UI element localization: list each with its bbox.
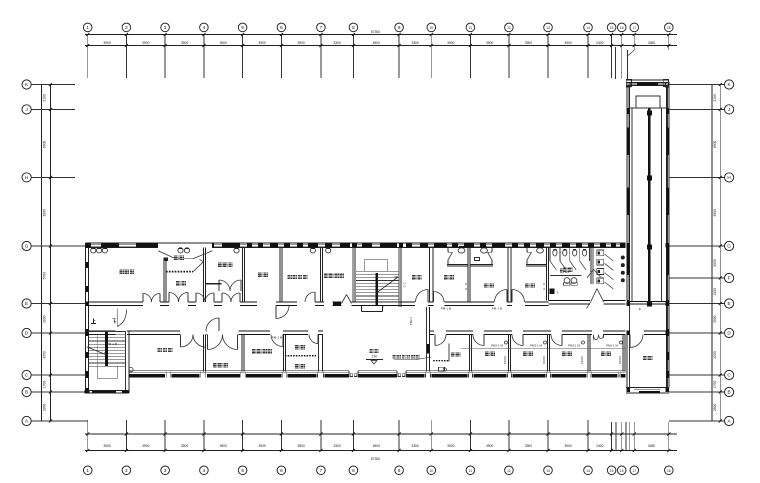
- svg-text:2: 2: [125, 25, 128, 30]
- svg-text:D: D: [25, 331, 29, 336]
- svg-text:3900: 3900: [220, 444, 228, 448]
- svg-text:5: 5: [241, 25, 244, 30]
- svg-text:15: 15: [610, 469, 614, 473]
- svg-text:2100: 2100: [713, 94, 717, 102]
- svg-text:F: F: [728, 276, 731, 281]
- svg-text:3: 3: [465, 287, 467, 291]
- svg-text:9: 9: [398, 468, 401, 473]
- svg-text:PM-1 M: PM-1 M: [272, 335, 283, 339]
- svg-text:3900: 3900: [103, 41, 111, 45]
- svg-text:10: 10: [430, 26, 434, 30]
- svg-text:1700: 1700: [43, 381, 47, 389]
- svg-text:11: 11: [469, 26, 473, 30]
- svg-text:11: 11: [469, 469, 473, 473]
- svg-text:3300: 3300: [412, 444, 420, 448]
- svg-text:3900: 3900: [258, 41, 266, 45]
- svg-text:1700: 1700: [713, 381, 717, 389]
- svg-text:3900: 3900: [486, 41, 494, 45]
- svg-text:C1015: C1015: [580, 355, 584, 364]
- svg-text:2: 2: [125, 468, 128, 473]
- svg-text:C-1: C-1: [403, 282, 407, 287]
- svg-text:17: 17: [633, 469, 637, 473]
- svg-text:13: 13: [546, 26, 550, 30]
- svg-text:1: 1: [86, 468, 89, 473]
- svg-text:2: 2: [382, 305, 384, 309]
- svg-text:7: 7: [320, 25, 323, 30]
- svg-text:PM-1 M: PM-1 M: [107, 342, 118, 346]
- svg-text:J: J: [728, 107, 730, 112]
- svg-text:PM2-1 M: PM2-1 M: [606, 344, 618, 348]
- svg-text:13: 13: [546, 469, 550, 473]
- svg-text:3900: 3900: [258, 444, 266, 448]
- svg-text:57300: 57300: [371, 457, 380, 461]
- svg-text:3900: 3900: [297, 444, 305, 448]
- svg-text:12: 12: [507, 469, 511, 473]
- svg-text:12: 12: [507, 26, 511, 30]
- svg-text:3: 3: [164, 468, 167, 473]
- svg-text:F: F: [639, 308, 642, 312]
- svg-text:3300: 3300: [333, 41, 341, 45]
- svg-text:3900: 3900: [142, 41, 150, 45]
- svg-text:2900: 2900: [43, 315, 47, 323]
- svg-text:3: 3: [543, 287, 545, 291]
- svg-text:2900: 2900: [713, 315, 717, 323]
- svg-text:8: 8: [352, 25, 355, 30]
- svg-text:A: A: [25, 419, 29, 424]
- svg-text:3450: 3450: [648, 444, 656, 448]
- svg-text:3900: 3900: [564, 444, 572, 448]
- svg-text:4500: 4500: [373, 41, 381, 45]
- svg-text:2400: 2400: [596, 41, 604, 45]
- svg-text:B: B: [25, 390, 28, 395]
- svg-text:3900: 3900: [525, 41, 533, 45]
- svg-text:1: 1: [86, 25, 89, 30]
- svg-text:3900: 3900: [297, 41, 305, 45]
- svg-text:D: D: [727, 331, 731, 336]
- svg-text:3900: 3900: [220, 41, 228, 45]
- svg-text:5700: 5700: [43, 272, 47, 280]
- svg-text:1:M: 1:M: [371, 355, 377, 359]
- svg-text:3: 3: [164, 25, 167, 30]
- svg-text:18: 18: [667, 469, 671, 473]
- svg-text:2400: 2400: [713, 288, 717, 296]
- svg-text:PM-1 M: PM-1 M: [441, 306, 452, 310]
- svg-text:G: G: [727, 244, 731, 249]
- svg-text:3300: 3300: [333, 444, 341, 448]
- svg-text:✕: ✕: [465, 282, 468, 286]
- svg-text:K: K: [728, 82, 732, 87]
- svg-text:C1015: C1015: [618, 355, 622, 364]
- svg-text:4200: 4200: [713, 351, 717, 359]
- svg-text:14: 14: [586, 26, 590, 30]
- svg-text:10: 10: [430, 469, 434, 473]
- svg-text:PM-1 M: PM-1 M: [492, 306, 503, 310]
- svg-text:K: K: [25, 82, 29, 87]
- svg-text:PM2-1 M: PM2-1 M: [568, 344, 580, 348]
- svg-text:3: 3: [557, 291, 559, 295]
- svg-text:18: 18: [667, 26, 671, 30]
- svg-text:H: H: [25, 175, 28, 180]
- svg-text:9: 9: [398, 25, 401, 30]
- svg-text:A: A: [728, 419, 732, 424]
- svg-text:3900: 3900: [486, 444, 494, 448]
- svg-text:6: 6: [280, 25, 283, 30]
- svg-text:57300: 57300: [371, 30, 380, 34]
- svg-text:3900: 3900: [142, 444, 150, 448]
- svg-text:3900: 3900: [103, 444, 111, 448]
- svg-text:6900: 6900: [43, 141, 47, 149]
- svg-text:B: B: [728, 390, 731, 395]
- svg-text:6: 6: [280, 468, 283, 473]
- svg-text:3450: 3450: [648, 41, 656, 45]
- svg-text:4: 4: [203, 468, 206, 473]
- svg-text:C1015: C1015: [503, 355, 507, 364]
- svg-text:C: C: [25, 373, 29, 378]
- svg-text:PM2-1: PM2-1: [409, 316, 413, 325]
- svg-text:17: 17: [633, 26, 637, 30]
- svg-text:3900: 3900: [447, 41, 455, 45]
- svg-text:3300: 3300: [412, 41, 420, 45]
- svg-text:2900: 2900: [713, 404, 717, 412]
- svg-text:4: 4: [203, 25, 206, 30]
- svg-text:E: E: [25, 301, 28, 306]
- svg-text:H: H: [727, 175, 730, 180]
- svg-text:J: J: [25, 107, 27, 112]
- svg-text:6900: 6900: [713, 209, 717, 217]
- svg-text:14: 14: [586, 469, 590, 473]
- svg-text:4200: 4200: [43, 351, 47, 359]
- svg-text:✕: ✕: [543, 282, 546, 286]
- svg-text:G: G: [25, 244, 29, 249]
- svg-text:3900: 3900: [564, 41, 572, 45]
- svg-text:PM2-1 M: PM2-1 M: [530, 344, 542, 348]
- svg-text:2400: 2400: [596, 444, 604, 448]
- svg-text:5: 5: [241, 468, 244, 473]
- svg-text:2100: 2100: [43, 94, 47, 102]
- svg-text:16: 16: [620, 469, 624, 473]
- svg-text:C1015: C1015: [542, 355, 546, 364]
- svg-text:PM2-1 M: PM2-1 M: [491, 344, 503, 348]
- svg-text:3900: 3900: [181, 444, 189, 448]
- svg-text:15: 15: [610, 26, 614, 30]
- svg-text:4500: 4500: [373, 444, 381, 448]
- svg-text:3900: 3900: [447, 444, 455, 448]
- svg-text:E: E: [728, 301, 731, 306]
- svg-text:C: C: [727, 373, 731, 378]
- svg-text:3900: 3900: [525, 444, 533, 448]
- svg-text:7: 7: [320, 468, 323, 473]
- svg-text:2900: 2900: [43, 404, 47, 412]
- svg-text:6900: 6900: [713, 141, 717, 149]
- svg-text:3900: 3900: [181, 41, 189, 45]
- svg-text:3000: 3000: [713, 259, 717, 267]
- svg-text:6900: 6900: [43, 209, 47, 217]
- svg-text:8: 8: [352, 468, 355, 473]
- svg-text:16: 16: [620, 26, 624, 30]
